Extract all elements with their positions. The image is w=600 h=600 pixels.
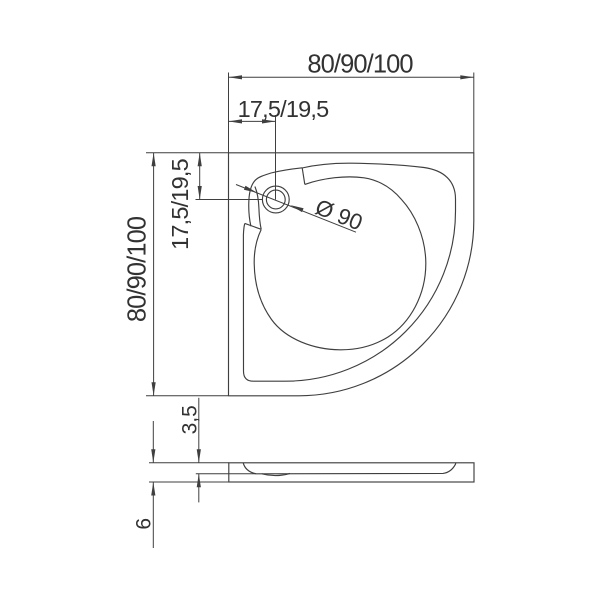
svg-text:3,5: 3,5 bbox=[179, 405, 202, 434]
svg-text:80/90/100: 80/90/100 bbox=[124, 216, 152, 322]
svg-text:17,5/19,5: 17,5/19,5 bbox=[167, 158, 193, 250]
svg-text:6: 6 bbox=[133, 518, 156, 530]
svg-text:80/90/100: 80/90/100 bbox=[307, 51, 413, 79]
svg-text:17,5/19,5: 17,5/19,5 bbox=[238, 96, 330, 122]
